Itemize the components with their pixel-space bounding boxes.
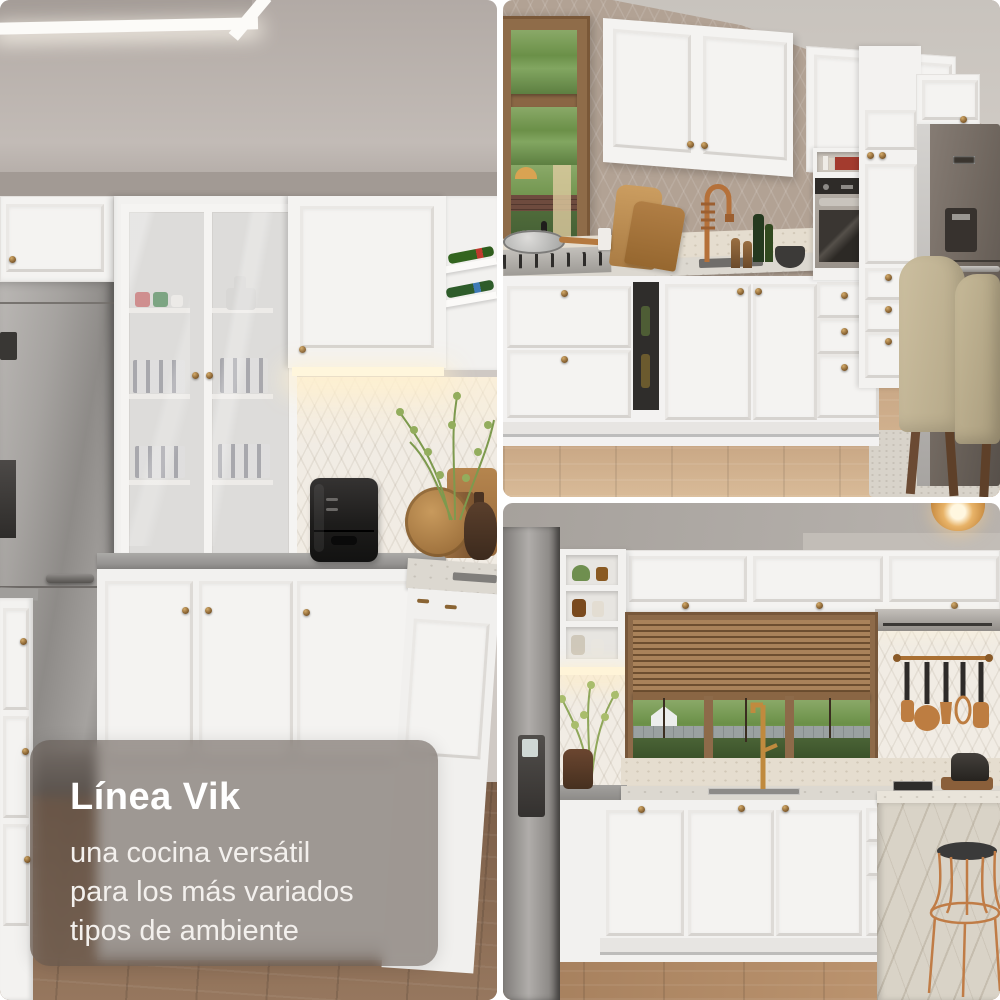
faucet-spout bbox=[725, 214, 734, 222]
fridge-door-seam bbox=[0, 302, 114, 304]
pendant-glimpse bbox=[515, 167, 537, 179]
drawer-panel bbox=[507, 286, 631, 348]
copper-faucet bbox=[683, 170, 743, 266]
olive-oil-bottle bbox=[753, 214, 764, 262]
fridge-water-dispenser bbox=[945, 208, 977, 252]
cabinet-panel bbox=[703, 36, 787, 161]
cabinet-panel bbox=[629, 556, 747, 602]
glass-door-right bbox=[204, 204, 297, 570]
drawer-knob bbox=[841, 364, 848, 371]
wall-cabinet bbox=[288, 196, 446, 368]
stool-wires bbox=[929, 851, 1000, 997]
drawer-knob bbox=[561, 290, 568, 297]
fridge-display bbox=[0, 332, 17, 360]
amber-bottle bbox=[596, 567, 608, 581]
island-drawers bbox=[0, 598, 33, 1000]
wall-cabinet-run bbox=[621, 550, 1000, 612]
window bbox=[503, 16, 590, 258]
cabinet-knob bbox=[687, 141, 694, 149]
copper-stool bbox=[923, 833, 1000, 1000]
drawer-knob bbox=[841, 328, 848, 335]
window-mullion bbox=[785, 696, 794, 760]
range-hood bbox=[875, 609, 1000, 631]
cabinet-panel bbox=[889, 556, 999, 602]
blind-cord bbox=[663, 698, 665, 738]
plinth bbox=[503, 422, 879, 434]
glass-reflection bbox=[129, 212, 190, 546]
faucet-body bbox=[753, 705, 763, 789]
jar bbox=[592, 601, 604, 617]
cabinet-panel bbox=[6, 204, 104, 272]
air-fryer-handle bbox=[331, 536, 357, 545]
cabinet-knob bbox=[782, 805, 789, 812]
cabinet-knob bbox=[737, 288, 744, 295]
cabinet-above-fridge bbox=[916, 74, 980, 126]
cabinet-knob bbox=[182, 607, 189, 614]
rail-finial bbox=[985, 654, 993, 662]
fridge-water-dispenser bbox=[0, 460, 16, 538]
cabinet-panel bbox=[688, 810, 774, 936]
drawer-knob bbox=[22, 748, 29, 755]
caption-panel: Línea Vik una cocina versátil para los m… bbox=[30, 740, 438, 966]
plant-decor-layer bbox=[380, 380, 497, 530]
book bbox=[829, 158, 834, 170]
drawer-knob bbox=[885, 338, 892, 345]
island-cooktop bbox=[893, 781, 933, 791]
amber-jar bbox=[572, 599, 586, 617]
plant-stems bbox=[398, 392, 494, 520]
cabinet-knob bbox=[879, 152, 886, 159]
gold-faucet bbox=[741, 693, 785, 793]
shelf-cubby bbox=[566, 591, 618, 621]
cabinet-knob bbox=[816, 602, 823, 609]
wood-blinds-valance bbox=[633, 620, 870, 696]
caption-title: Línea Vik bbox=[70, 776, 241, 819]
drawer-knob bbox=[20, 638, 27, 645]
drawer-knob bbox=[885, 306, 892, 313]
sink bbox=[453, 572, 497, 583]
cabinet-knob bbox=[682, 602, 689, 609]
wood-vase bbox=[563, 749, 593, 789]
drawer-handle bbox=[417, 599, 429, 604]
cabinet-knob bbox=[303, 609, 310, 616]
cabinet-knob bbox=[206, 372, 213, 379]
cabinet-knob bbox=[738, 805, 745, 812]
cabinet-knob bbox=[192, 372, 199, 379]
cabinet-knob bbox=[205, 607, 212, 614]
fridge-water-dispenser bbox=[518, 735, 545, 817]
bottle bbox=[641, 306, 650, 336]
open-shelf-unit bbox=[558, 549, 626, 667]
cabinet-panel bbox=[300, 206, 434, 348]
glass-reflection bbox=[212, 212, 273, 546]
blind-cord bbox=[829, 698, 831, 738]
blinds-lower bbox=[511, 107, 577, 165]
cabinet-panel bbox=[753, 284, 817, 420]
bottle bbox=[641, 354, 650, 388]
hood-vent-slot bbox=[883, 623, 992, 626]
cabinet-panel bbox=[105, 581, 193, 763]
cabinet-panel bbox=[199, 581, 293, 763]
cork-jar bbox=[571, 635, 585, 655]
drawer-knob bbox=[841, 292, 848, 299]
drawer-knob bbox=[561, 356, 568, 363]
cabinet-knob bbox=[960, 116, 967, 123]
air-fryer bbox=[310, 478, 378, 562]
potted-plant bbox=[572, 565, 590, 581]
cabinet-knob bbox=[9, 256, 16, 263]
cutting-board bbox=[624, 200, 686, 272]
cabinet-panel bbox=[753, 556, 883, 602]
island-countertop bbox=[877, 791, 1000, 803]
oven-display bbox=[841, 185, 853, 189]
kettle bbox=[951, 753, 989, 781]
cabinet-knob bbox=[951, 602, 958, 609]
window-mullion bbox=[704, 696, 713, 760]
drawer-panel bbox=[507, 350, 631, 418]
drawer-panel bbox=[3, 824, 29, 926]
light-switch bbox=[598, 228, 611, 250]
book bbox=[823, 156, 828, 170]
glass-door-left bbox=[121, 204, 214, 570]
rail-finial bbox=[893, 654, 901, 662]
blinds-upper bbox=[511, 30, 577, 94]
utensil-handles bbox=[907, 662, 981, 704]
oil-bottle bbox=[765, 224, 773, 262]
photo-kitchen-window-island bbox=[503, 503, 1000, 1000]
oven-knob bbox=[823, 184, 829, 190]
cabinet-panel bbox=[865, 164, 917, 264]
drawer-handle bbox=[445, 605, 457, 610]
shelf-cubby bbox=[566, 627, 618, 659]
cooktop-grates bbox=[503, 251, 611, 269]
cabinet-knob bbox=[867, 152, 874, 159]
cabinet-panel bbox=[665, 284, 751, 420]
wall-cabinet-run bbox=[603, 18, 793, 177]
cabinet-panel bbox=[922, 80, 978, 120]
dispenser-lever bbox=[952, 214, 970, 220]
stool-seat bbox=[937, 842, 997, 860]
cabinet-panel bbox=[613, 29, 691, 153]
glass-display-cabinet bbox=[114, 196, 288, 564]
cabinet-knob bbox=[299, 346, 306, 353]
shelf-cubby bbox=[566, 555, 618, 585]
cabinet-panel bbox=[776, 810, 862, 936]
plant-leaves bbox=[396, 392, 492, 482]
photo-kitchen-linear-run bbox=[503, 0, 1000, 497]
fridge-handle bbox=[46, 574, 94, 583]
cabinet-panel bbox=[404, 618, 489, 759]
dispenser-screen bbox=[522, 739, 538, 757]
plinth-shadow bbox=[503, 434, 879, 437]
cabinet-panel bbox=[865, 110, 917, 150]
cabinet-knob bbox=[701, 142, 708, 150]
caption-subtitle: una cocina versátil para los más variado… bbox=[70, 834, 354, 951]
drawer-knob bbox=[885, 274, 892, 281]
utensil-heads bbox=[901, 697, 989, 731]
pullout-bottle-rack bbox=[633, 282, 659, 410]
air-fryer-sheen bbox=[314, 484, 324, 552]
steel-pan bbox=[503, 230, 565, 254]
drawer-panel bbox=[3, 716, 29, 818]
pepper-mill bbox=[743, 241, 752, 268]
countertop bbox=[97, 553, 446, 569]
cabinet-panel bbox=[606, 810, 684, 936]
corner-wine-shelf bbox=[444, 196, 497, 370]
window-mid-rail bbox=[511, 94, 577, 107]
drawer-panel bbox=[3, 608, 29, 710]
jar bbox=[591, 639, 604, 655]
refrigerator bbox=[503, 527, 560, 1000]
base-cabinets bbox=[503, 276, 879, 446]
air-fryer-control bbox=[326, 508, 338, 511]
red-book bbox=[835, 157, 859, 170]
marketing-collage: Línea Vik una cocina versátil para los m… bbox=[0, 0, 1000, 1000]
air-fryer-control bbox=[326, 498, 338, 501]
faucet-body bbox=[707, 187, 729, 263]
under-cabinet-light bbox=[292, 367, 444, 376]
fridge-display bbox=[953, 156, 975, 164]
wall-cabinet bbox=[0, 196, 114, 282]
dining-chair bbox=[955, 274, 1000, 444]
cabinet-knob bbox=[638, 806, 645, 813]
cabinet-knob bbox=[755, 288, 762, 295]
